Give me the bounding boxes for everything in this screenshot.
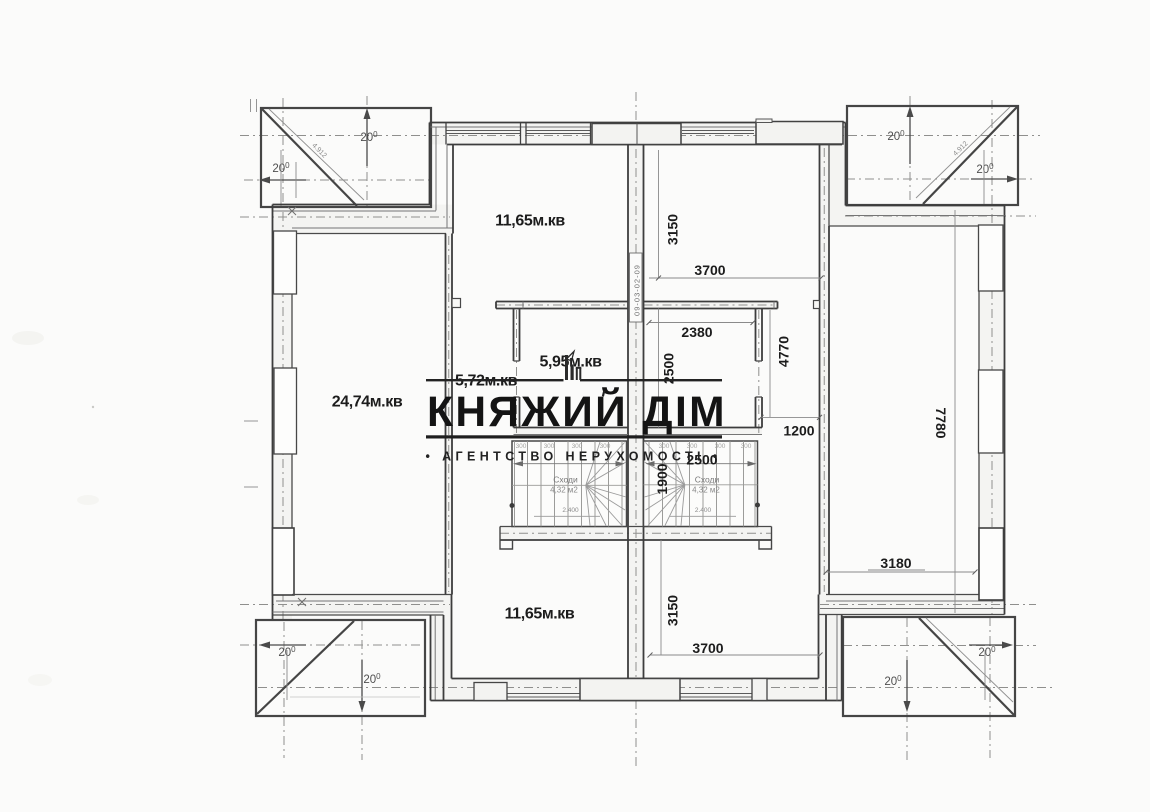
svg-text:2.400: 2.400 <box>695 507 712 514</box>
svg-text:3700: 3700 <box>694 262 725 278</box>
svg-text:11,65м.кв: 11,65м.кв <box>505 606 575 623</box>
svg-text:300: 300 <box>741 443 752 450</box>
svg-text:• АГЕНТСТВО НЕРУХОМОСТІ •: • АГЕНТСТВО НЕРУХОМОСТІ • <box>425 450 721 464</box>
svg-text:1200: 1200 <box>783 423 814 439</box>
svg-text:4,32 м2: 4,32 м2 <box>550 486 578 495</box>
svg-text:3180: 3180 <box>880 555 911 571</box>
svg-text:Сходи: Сходи <box>553 475 578 485</box>
svg-text:7780: 7780 <box>933 407 949 438</box>
svg-text:КНЯЖИЙ ДІМ: КНЯЖИЙ ДІМ <box>427 387 727 436</box>
svg-text:3150: 3150 <box>665 595 681 626</box>
svg-text:4770: 4770 <box>776 336 792 367</box>
svg-text:Сходи: Сходи <box>695 475 720 485</box>
svg-text:09-03-02-09: 09-03-02-09 <box>633 264 642 316</box>
svg-text:11,65м.кв: 11,65м.кв <box>495 213 565 230</box>
svg-text:2.400: 2.400 <box>562 507 579 514</box>
svg-text:3700: 3700 <box>692 640 723 656</box>
svg-text:24,74м.кв: 24,74м.кв <box>332 394 403 411</box>
svg-text:3150: 3150 <box>665 214 681 245</box>
svg-text:4,32 м2: 4,32 м2 <box>692 486 720 495</box>
svg-text:1900: 1900 <box>654 463 670 494</box>
svg-text:2380: 2380 <box>681 324 712 340</box>
